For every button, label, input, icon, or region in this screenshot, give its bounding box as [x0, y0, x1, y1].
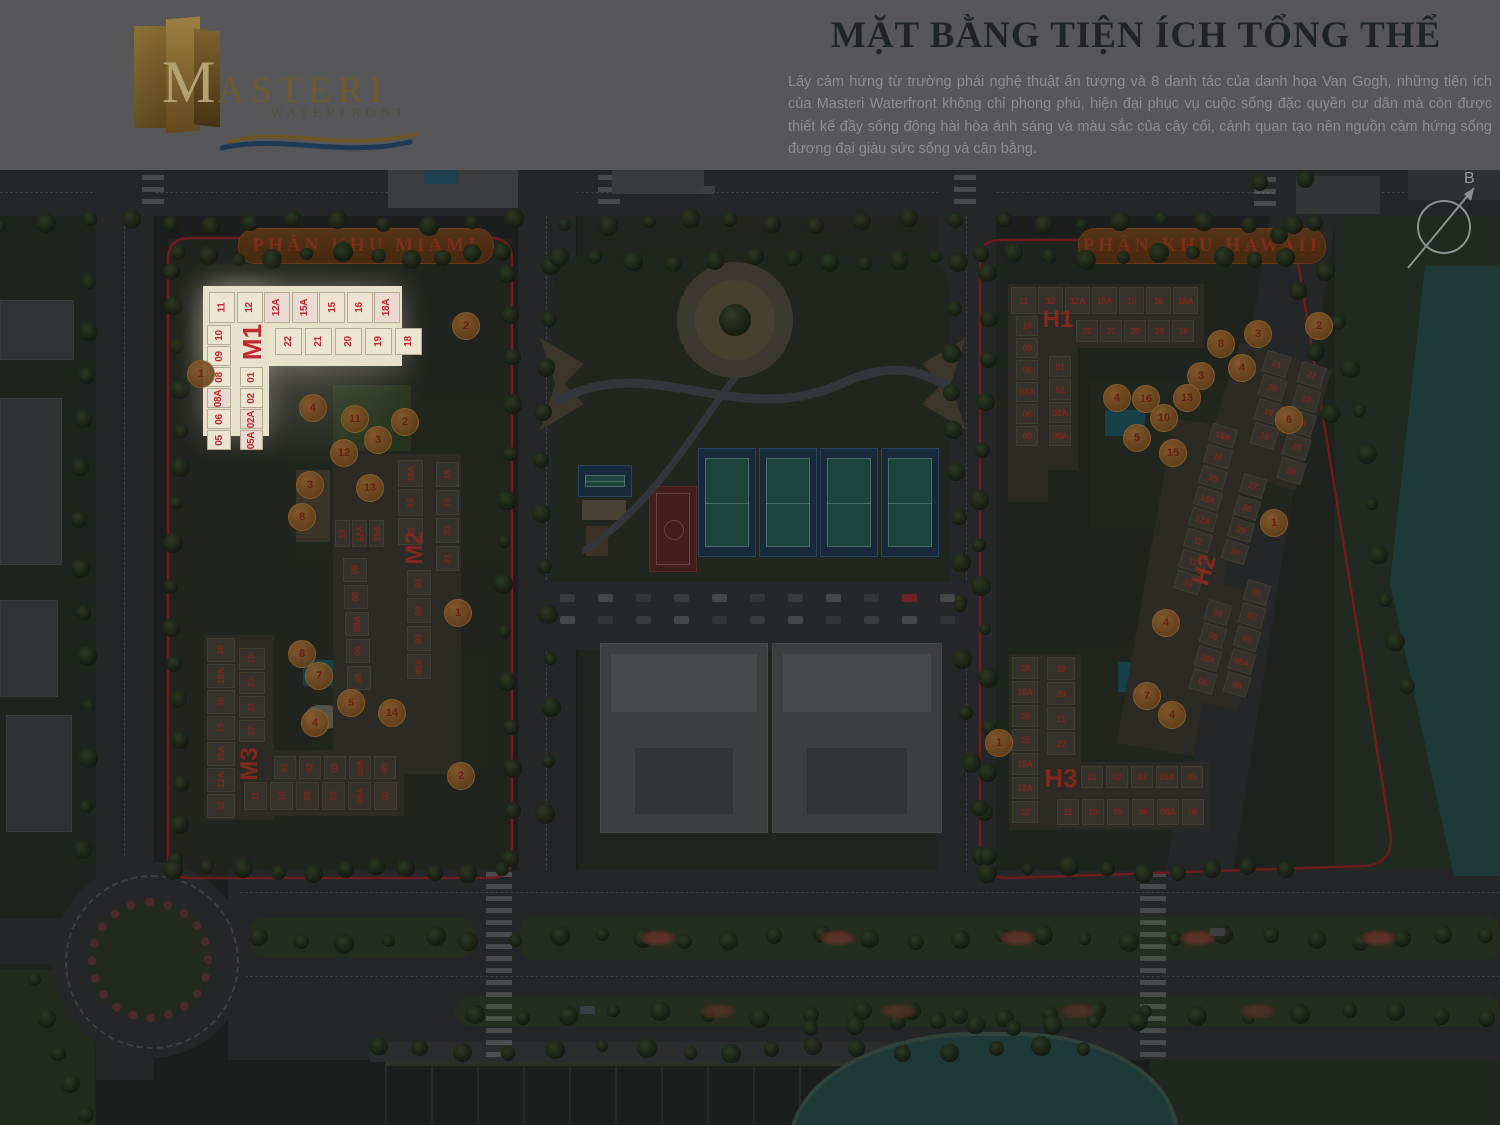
unit-number: 06: [214, 414, 225, 425]
unit-cell-M2-08: 08: [344, 585, 368, 609]
unit-number: 06: [1022, 409, 1031, 419]
tree-icon: [498, 625, 511, 638]
unit-number: 08A: [1160, 807, 1176, 817]
unit-number: 05: [1187, 772, 1196, 782]
unit-number: 12A: [355, 526, 365, 542]
unit-cell-H3-20: 20: [1047, 682, 1075, 705]
unit-number: 02A: [1052, 408, 1068, 418]
tree-icon: [369, 1037, 387, 1055]
unit-number: 02: [1112, 772, 1121, 782]
unit-number: 12A: [1070, 296, 1086, 306]
tree-icon: [170, 496, 183, 509]
tree-icon: [598, 216, 618, 236]
unit-cell-H1-19: 19: [1148, 320, 1170, 342]
unit-number: 30: [1229, 546, 1241, 558]
tree-icon: [973, 245, 989, 261]
unit-number: 02: [414, 606, 424, 615]
unit-cell-H1-02A: 02A: [1049, 402, 1071, 423]
tree-icon: [1277, 861, 1294, 878]
unit-number: 19: [373, 336, 384, 347]
parked-car: [636, 616, 651, 624]
unit-cell-M2-08A: 08A: [345, 612, 369, 636]
tree-icon: [396, 859, 414, 877]
unit-number: 20: [343, 336, 354, 347]
unit-cell-M3-08: 08: [322, 782, 345, 810]
tree-icon: [706, 251, 724, 269]
unit-cell-H1-02: 02: [1049, 379, 1071, 400]
tree-icon: [458, 864, 477, 883]
unit-number: 08A: [1019, 387, 1035, 397]
unit-number: 15A: [299, 299, 310, 316]
tree-icon: [122, 209, 141, 228]
flower-bed: [1000, 930, 1036, 946]
tree-icon: [559, 1006, 579, 1026]
unit-cell-M1-20: 20: [335, 328, 362, 355]
unit-number: 18: [216, 645, 226, 654]
amenity-marker-13: 13: [1173, 384, 1201, 412]
unit-cell-M3-20: 20: [239, 672, 265, 694]
unit-number: 15: [1127, 296, 1136, 306]
tree-icon: [198, 246, 218, 266]
unit-cell-H1-15: 15: [1119, 287, 1144, 314]
unit-cell-M2-05A: 05A: [407, 654, 431, 679]
amenity-marker-8: 8: [288, 503, 316, 531]
unit-number: 15A: [1199, 491, 1217, 505]
amenity-marker-1: 1: [985, 729, 1013, 757]
tree-icon: [948, 253, 968, 273]
unit-cell-H1-20: 20: [1124, 320, 1146, 342]
tree-icon: [623, 252, 642, 271]
unit-number: 15: [1020, 735, 1029, 745]
unit-cell-M1-08A: 08A: [207, 388, 231, 408]
compass-north-label: B: [1464, 170, 1475, 188]
tree-icon: [532, 504, 551, 523]
logo-wave-icon: [220, 122, 420, 158]
tree-icon: [534, 403, 552, 421]
unit-number: 05A: [1052, 431, 1068, 441]
tree-icon: [680, 208, 700, 228]
tree-icon: [233, 858, 253, 878]
tree-icon: [76, 605, 91, 620]
building-label-H1: H1: [1026, 307, 1090, 333]
unit-cell-H1-18: 18: [1172, 320, 1194, 342]
unit-cell-M1-15A: 15A: [292, 292, 318, 323]
unit-cell-M1-02: 02: [240, 388, 263, 408]
unit-cell-H1-05A: 05A: [1049, 425, 1071, 446]
unit-number: 18: [442, 470, 452, 479]
tree-icon: [721, 1044, 741, 1064]
tree-icon: [81, 274, 95, 288]
unit-number: 05A: [414, 659, 424, 675]
tree-icon: [719, 931, 738, 950]
tree-icon: [853, 213, 871, 231]
tree-icon: [958, 706, 972, 720]
tree-icon: [170, 380, 190, 400]
tree-icon: [79, 800, 92, 813]
unit-cell-M3-19: 19: [239, 648, 265, 670]
unit-cell-M2-05: 05: [347, 666, 371, 690]
unit-number: 11: [216, 303, 227, 313]
amenity-marker-4: 4: [299, 394, 327, 422]
unit-number: 21: [313, 336, 324, 347]
unit-number: 03: [330, 763, 340, 772]
unit-cell-M2-12A: 12A: [352, 520, 367, 547]
tree-icon: [262, 249, 282, 269]
unit-number: 08A: [355, 788, 365, 804]
unit-cell-M3-05: 05: [374, 756, 396, 779]
tree-icon: [163, 533, 183, 553]
tree-icon: [1263, 927, 1279, 943]
tree-icon: [294, 934, 309, 949]
unit-number: 18A: [406, 466, 416, 482]
tree-icon: [1119, 932, 1139, 952]
unit-number: 10: [276, 791, 286, 800]
unit-number: 10: [214, 330, 225, 341]
unit-number: 26: [1286, 465, 1298, 477]
tree-icon: [1241, 217, 1257, 233]
tree-icon: [493, 243, 511, 261]
unit-cell-H1-05: 05: [1016, 426, 1038, 446]
tree-icon: [371, 249, 386, 264]
unit-number: 16: [216, 697, 226, 706]
unit-number: 18: [1178, 326, 1187, 336]
building-label-M2: M2: [402, 516, 428, 580]
unit-number: 18A: [1178, 296, 1194, 306]
tree-icon: [163, 216, 179, 232]
tree-icon: [166, 655, 182, 671]
unit-number: 08A: [352, 616, 362, 632]
unit-number: 06: [353, 646, 363, 655]
unit-number: 12A: [1194, 512, 1212, 526]
unit-cell-H3-21: 21: [1047, 707, 1075, 730]
unit-cell-M1-16: 16: [347, 292, 373, 323]
parked-car: [636, 594, 651, 602]
tree-icon: [894, 1045, 911, 1062]
building-label-M3: M3: [237, 732, 263, 796]
parked-car: [750, 616, 765, 624]
unit-number: 20: [247, 678, 257, 687]
unit-cell-M2-20: 20: [436, 518, 459, 543]
unit-cell-M1-12A: 12A: [264, 292, 290, 323]
tree-icon: [284, 210, 301, 227]
tree-icon: [1214, 247, 1234, 267]
unit-number: 21: [1271, 358, 1283, 370]
tree-icon: [493, 574, 513, 594]
unit-number: 06: [1197, 675, 1209, 687]
tree-icon: [978, 264, 997, 283]
tree-icon: [1203, 859, 1221, 877]
tree-icon: [908, 934, 924, 950]
unit-number: 05: [380, 763, 390, 772]
parked-car: [864, 616, 879, 624]
tree-icon: [1290, 1004, 1310, 1024]
tree-icon: [503, 720, 518, 735]
tree-icon: [61, 1074, 80, 1093]
tree-icon: [1433, 1008, 1450, 1025]
unit-cell-H3-09: 09: [1107, 799, 1129, 825]
unit-number: 18A: [1214, 428, 1232, 442]
parked-car: [902, 594, 917, 602]
amenity-marker-13: 13: [356, 474, 384, 502]
tree-icon: [1239, 857, 1257, 875]
unit-number: 08A: [213, 389, 224, 406]
unit-number: 02A: [246, 410, 257, 427]
tree-icon: [171, 244, 186, 259]
unit-cell-M2-12: 12: [335, 520, 350, 547]
tree-icon: [785, 249, 802, 266]
unit-number: 18: [1259, 430, 1271, 442]
tree-icon: [947, 212, 963, 228]
unit-number: 15A: [1097, 296, 1113, 306]
tree-icon: [1306, 214, 1323, 231]
unit-cell-H1-08A: 08A: [1016, 382, 1038, 402]
tree-icon: [860, 929, 878, 947]
tree-icon: [466, 215, 479, 228]
unit-number: 12: [216, 801, 226, 810]
unit-number: 09: [1022, 343, 1031, 353]
unit-number: 20: [1130, 326, 1139, 336]
tree-icon: [503, 759, 522, 778]
parked-car: [712, 594, 727, 602]
unit-number: 01: [280, 763, 290, 772]
tree-icon: [77, 1106, 94, 1123]
amenity-marker-3: 3: [364, 426, 392, 454]
unit-cell-M3-12: 12: [207, 794, 235, 818]
tree-icon: [1340, 359, 1360, 379]
car: [1210, 928, 1225, 936]
unit-cell-M3-10: 10: [270, 782, 293, 810]
unit-cell-M3-15: 15: [207, 716, 235, 740]
unit-number: 05A: [1159, 772, 1175, 782]
unit-number: 09: [302, 791, 312, 800]
tree-icon: [77, 646, 97, 666]
parked-car: [826, 594, 841, 602]
unit-number: 28: [1241, 502, 1253, 514]
unit-number: 20: [442, 526, 452, 535]
flower-bed: [640, 930, 676, 946]
unit-number: 05: [1022, 431, 1031, 441]
unit-cell-M3-16: 16: [207, 690, 235, 714]
building-label-M1: M1: [239, 310, 265, 374]
unit-number: 02: [246, 393, 257, 404]
tree-icon: [764, 1041, 780, 1057]
amenity-marker-8: 8: [1207, 330, 1235, 358]
flower-bed: [1240, 1003, 1276, 1019]
unit-cell-M1-10: 10: [207, 325, 231, 345]
amenity-marker-1: 1: [444, 599, 472, 627]
parked-car: [902, 616, 917, 624]
tree-icon: [962, 753, 981, 772]
unit-cell-H3-18: 18: [1012, 657, 1038, 679]
tree-icon: [1478, 928, 1493, 943]
unit-cell-M1-18: 18: [395, 328, 422, 355]
tree-icon: [516, 1011, 530, 1025]
unit-cell-H3-18A: 18A: [1012, 681, 1038, 703]
tree-icon: [976, 393, 995, 412]
unit-cell-M3-15A: 15A: [207, 742, 235, 766]
unit-cell-H3-19: 19: [1047, 657, 1075, 680]
tree-icon: [980, 310, 997, 327]
parked-car: [826, 616, 841, 624]
tree-icon: [171, 731, 189, 749]
unit-cell-M2-03: 03: [407, 626, 431, 651]
unit-number: 02: [1246, 609, 1258, 621]
tree-icon: [820, 253, 839, 272]
unit-number: 03: [1241, 632, 1253, 644]
unit-number: 09: [1212, 606, 1224, 618]
unit-cell-H1-16: 16: [1146, 287, 1171, 314]
flower-bed: [1060, 1003, 1096, 1019]
unit-cell-H1-21: 21: [1100, 320, 1122, 342]
amenity-marker-2: 2: [447, 762, 475, 790]
tree-icon: [1076, 250, 1096, 270]
tree-icon: [1385, 632, 1404, 651]
tree-icon: [1100, 862, 1114, 876]
unit-cell-M2-16: 16: [398, 489, 423, 516]
tree-icon: [501, 1046, 515, 1060]
unit-cell-H1-15A: 15A: [1092, 287, 1117, 314]
parked-car: [788, 616, 803, 624]
parked-car: [674, 594, 689, 602]
tree-icon: [1393, 930, 1410, 947]
unit-cell-M1-11: 11: [209, 292, 235, 323]
tree-icon: [50, 1046, 65, 1061]
tree-icon: [249, 928, 268, 947]
tree-icon: [952, 649, 972, 669]
tree-icon: [978, 668, 998, 688]
unit-cell-M1-05: 05: [207, 430, 231, 450]
tree-icon: [78, 748, 98, 768]
amenity-marker-14: 14: [378, 699, 406, 727]
unit-cell-H3-02: 02: [1106, 766, 1128, 788]
masteri-logo: MASTERI WATERFRONT: [128, 10, 408, 160]
tree-icon: [1368, 545, 1388, 565]
tree-icon: [78, 367, 94, 383]
parked-car: [750, 594, 765, 602]
amenity-marker-4: 4: [1152, 609, 1180, 637]
unit-number: 18: [1020, 663, 1029, 673]
tree-icon: [170, 815, 189, 834]
tree-icon: [170, 457, 190, 477]
tree-icon: [1170, 865, 1186, 881]
unit-number: 20: [1056, 689, 1065, 699]
unit-number: 08: [1138, 807, 1147, 817]
unit-number: 19: [1056, 664, 1065, 674]
tree-icon: [163, 263, 180, 280]
building-label-H3: H3: [1029, 765, 1093, 791]
tree-icon: [974, 443, 990, 459]
unit-number: 18A: [1017, 687, 1033, 697]
parked-car: [864, 594, 879, 602]
tree-icon: [966, 1016, 985, 1035]
tree-icon: [376, 217, 391, 232]
unit-cell-M3-18A: 18A: [207, 664, 235, 688]
unit-number: 12A: [271, 299, 282, 316]
unit-cell-M1-22: 22: [275, 328, 302, 355]
amenity-marker-3: 3: [296, 471, 324, 499]
tree-icon: [1308, 930, 1327, 949]
header-text-block: MẶT BẰNG TIỆN ÍCH TỔNG THỂ Lấy cảm hứng …: [780, 14, 1492, 161]
parked-car: [560, 616, 575, 624]
unit-cell-M2-21: 21: [436, 546, 459, 571]
unit-number: 25: [1291, 441, 1303, 453]
unit-number: 11: [1064, 807, 1073, 817]
amenity-marker-7: 7: [305, 662, 333, 690]
unit-number: 12: [1046, 296, 1055, 306]
tree-icon: [538, 605, 558, 625]
tree-icon: [558, 218, 571, 231]
tree-icon: [1110, 211, 1130, 231]
unit-number: 08A: [1199, 651, 1217, 665]
car: [700, 186, 715, 194]
tree-icon: [972, 539, 986, 553]
unit-number: 18: [403, 336, 414, 347]
unit-number: 06: [1188, 807, 1197, 817]
unit-cell-H3-22: 22: [1047, 732, 1075, 755]
unit-cell-H3-15: 15: [1012, 729, 1038, 751]
tree-icon: [367, 857, 385, 875]
parked-car: [598, 616, 613, 624]
unit-cell-H1-08: 08: [1016, 360, 1038, 380]
unit-number: 12A: [216, 772, 226, 788]
unit-cell-M3-08A: 08A: [348, 782, 371, 810]
tree-icon: [803, 1020, 818, 1035]
unit-number: 19: [442, 498, 452, 507]
unit-number: 23: [1301, 393, 1313, 405]
tree-icon: [1478, 1009, 1496, 1027]
unit-number: 02: [1055, 385, 1064, 395]
unit-number: 12: [1020, 807, 1029, 817]
unit-cell-M3-03: 03: [324, 756, 346, 779]
tree-icon: [541, 697, 561, 717]
amenity-marker-10: 10: [1150, 404, 1178, 432]
parked-car: [940, 616, 955, 624]
unit-cell-M3-01: 01: [274, 756, 296, 779]
unit-number: 27: [1247, 480, 1259, 492]
unit-number: 06: [380, 791, 390, 800]
unit-number: 10: [1088, 807, 1097, 817]
tree-icon: [328, 210, 347, 229]
unit-cell-M2-09: 09: [343, 558, 367, 582]
tree-icon: [1186, 246, 1200, 260]
tree-icon: [1042, 249, 1056, 263]
tree-icon: [419, 216, 439, 236]
tree-icon: [83, 212, 97, 226]
amenity-marker-6: 6: [1275, 406, 1303, 434]
unit-number: 16: [354, 302, 365, 313]
tree-icon: [174, 425, 188, 439]
parked-car: [598, 594, 613, 602]
unit-cell-H3-16: 16: [1012, 705, 1038, 727]
tree-icon: [1342, 1003, 1357, 1018]
tree-icon: [857, 256, 872, 271]
unit-cell-H3-11: 11: [1057, 799, 1079, 825]
tree-icon: [304, 864, 323, 883]
parked-car: [712, 616, 727, 624]
tree-icon: [900, 209, 918, 227]
tree-icon: [889, 250, 909, 270]
unit-cell-M3-02: 02: [299, 756, 321, 779]
unit-number: 05: [214, 435, 225, 446]
tree-icon: [944, 421, 961, 438]
amenity-marker-5: 5: [1123, 424, 1151, 452]
unit-number: 21: [1106, 326, 1115, 336]
tree-icon: [942, 344, 961, 363]
tree-icon: [1357, 444, 1377, 464]
amenity-marker-5: 5: [337, 689, 365, 717]
unit-number: 09: [1113, 807, 1122, 817]
unit-cell-H3-08A: 08A: [1157, 799, 1179, 825]
